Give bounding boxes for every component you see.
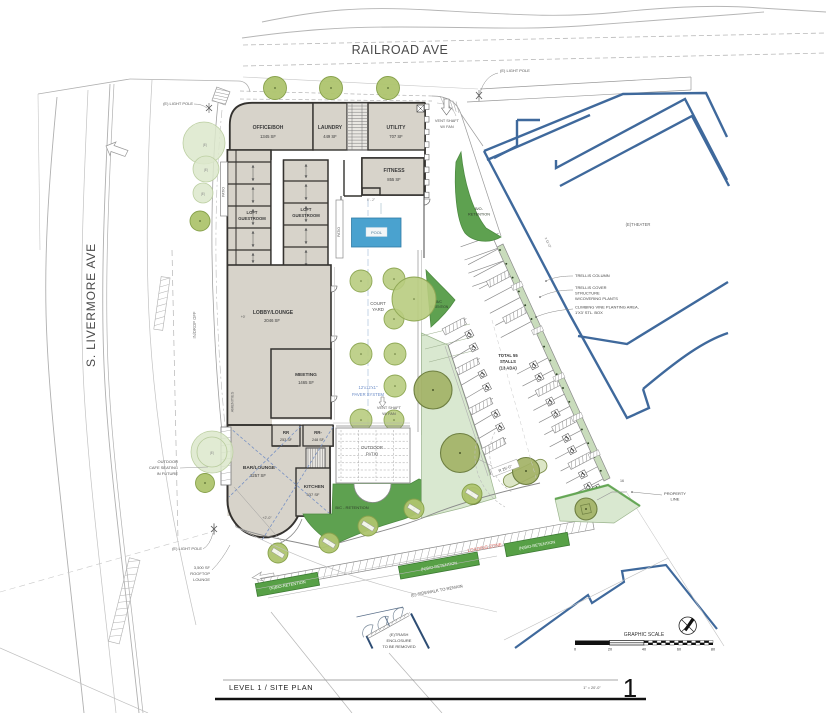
svg-text:707 SF: 707 SF [389,134,403,139]
svg-text:1" = 20'-0": 1" = 20'-0" [583,686,601,690]
svg-text:3,500 SF: 3,500 SF [194,565,211,570]
svg-text:(E): (E) [201,192,205,196]
svg-text:PATIO: PATIO [222,187,226,197]
svg-text:AMENITIES: AMENITIES [231,391,235,412]
svg-text:LOFT: LOFT [247,210,258,215]
svg-text:B/C: B/C [436,300,442,304]
svg-text:LAUNDRY: LAUNDRY [318,125,343,131]
svg-text:248 SF: 248 SF [312,438,325,442]
svg-text:B/O-: B/O- [475,207,484,211]
svg-text:+2'-0": +2'-0" [262,516,272,520]
svg-text:(13 ADA): (13 ADA) [499,366,517,371]
svg-text:(E) LIGHT POLE: (E) LIGHT POLE [500,68,530,73]
svg-text:RETENTION: RETENTION [468,213,490,217]
svg-text:BAR/LOUNGE: BAR/LOUNGE [243,465,276,471]
svg-text:(E): (E) [210,451,214,455]
svg-text:PATIO: PATIO [337,227,341,237]
svg-text:TO BE REMOVED: TO BE REMOVED [382,644,415,649]
svg-text:OUTDOOR: OUTDOOR [361,445,383,450]
svg-text:(E): (E) [204,168,208,172]
svg-text:LOUNGE: LOUNGE [193,577,210,582]
svg-text:1465 SF: 1465 SF [298,380,314,385]
svg-text:ROOFTOP: ROOFTOP [190,571,210,576]
svg-text:TRELLIS COVER: TRELLIS COVER [575,285,607,290]
svg-text:S. LIVERMORE AVE: S. LIVERMORE AVE [84,243,98,367]
svg-text:FITNESS: FITNESS [383,168,405,174]
svg-text:TRELLIS COLUMN: TRELLIS COLUMN [575,273,610,278]
svg-text:RR-: RR- [314,430,322,435]
svg-text:PAVER SYSTEM: PAVER SYSTEM [352,392,384,397]
svg-text:449 SF: 449 SF [323,134,337,139]
svg-text:UTILITY: UTILITY [387,125,407,131]
svg-text:16: 16 [620,479,624,483]
svg-text:LINE: LINE [671,497,680,502]
svg-text:OUTDOOR: OUTDOOR [158,459,179,464]
svg-text:CLIMBING VINE PLANTING AREA,: CLIMBING VINE PLANTING AREA, [575,305,639,310]
svg-text:3257 SF: 3257 SF [250,473,266,478]
svg-text:W/COVERING PLANTS: W/COVERING PLANTS [575,296,618,301]
svg-text:TOTAL 55: TOTAL 55 [498,353,518,358]
svg-text:CAFE SEATING: CAFE SEATING [149,465,178,470]
svg-text:80: 80 [711,648,715,652]
svg-text:20: 20 [608,648,612,652]
svg-text:ENCLOSURE: ENCLOSURE [387,638,412,643]
svg-text:GUESTROOM: GUESTROOM [238,216,266,221]
svg-text:LOBBY/LOUNGE: LOBBY/LOUNGE [253,310,294,316]
svg-text:(E): (E) [203,143,207,147]
svg-text:IN FUTURE: IN FUTURE [157,471,179,476]
svg-text:(E) LIGHT POLE: (E) LIGHT POLE [172,546,202,551]
svg-text:+0': +0' [241,315,246,319]
svg-text:40: 40 [642,648,646,652]
svg-text:RR: RR [283,430,290,435]
svg-text:W/ FAN: W/ FAN [440,124,454,129]
svg-text:OFFICE/BOH: OFFICE/BOH [253,125,284,131]
svg-text:VENT SHAFT: VENT SHAFT [435,118,460,123]
svg-text:(E)THEATER: (E)THEATER [626,222,651,227]
svg-text:W/ FAN: W/ FAN [382,411,396,416]
svg-text:LEVEL 1 / SITE PLAN: LEVEL 1 / SITE PLAN [229,683,313,692]
svg-text:STALLS: STALLS [500,359,516,364]
svg-text:B/C - RETENTION: B/C - RETENTION [335,505,368,510]
svg-text:(E)TRASH: (E)TRASH [390,632,409,637]
svg-text:1'X3' STL. BOX: 1'X3' STL. BOX [575,310,603,315]
svg-text:POOL: POOL [371,230,383,235]
svg-text:2046 SF: 2046 SF [264,318,280,323]
svg-text:STRUCTURE: STRUCTURE [575,291,600,296]
svg-text:1345 SF: 1345 SF [260,134,276,139]
svg-text:IN/DROP OFF: IN/DROP OFF [192,311,197,338]
svg-text:60: 60 [677,648,681,652]
svg-text:MEETING: MEETING [295,372,317,378]
svg-text:COURT: COURT [370,301,386,306]
svg-text:GRAPHIC SCALE: GRAPHIC SCALE [624,632,665,638]
svg-text:537 SF: 537 SF [307,492,320,497]
svg-text:PATIO: PATIO [366,452,379,457]
svg-text:855 SF: 855 SF [387,177,401,182]
svg-text:(E) LIGHT POLE: (E) LIGHT POLE [163,101,193,106]
svg-text:12'x12'x1": 12'x12'x1" [359,385,378,390]
svg-text:GUESTROOM: GUESTROOM [292,213,320,218]
svg-text:0: 0 [574,648,576,652]
svg-text:RAILROAD AVE: RAILROAD AVE [352,43,449,57]
svg-text:PROPERTY: PROPERTY [664,491,686,496]
svg-text:KITCHEN: KITCHEN [304,484,325,489]
svg-text:LOFT: LOFT [301,207,312,212]
svg-text:YARD: YARD [372,307,384,312]
svg-text:VENT SHAFT: VENT SHAFT [377,405,402,410]
